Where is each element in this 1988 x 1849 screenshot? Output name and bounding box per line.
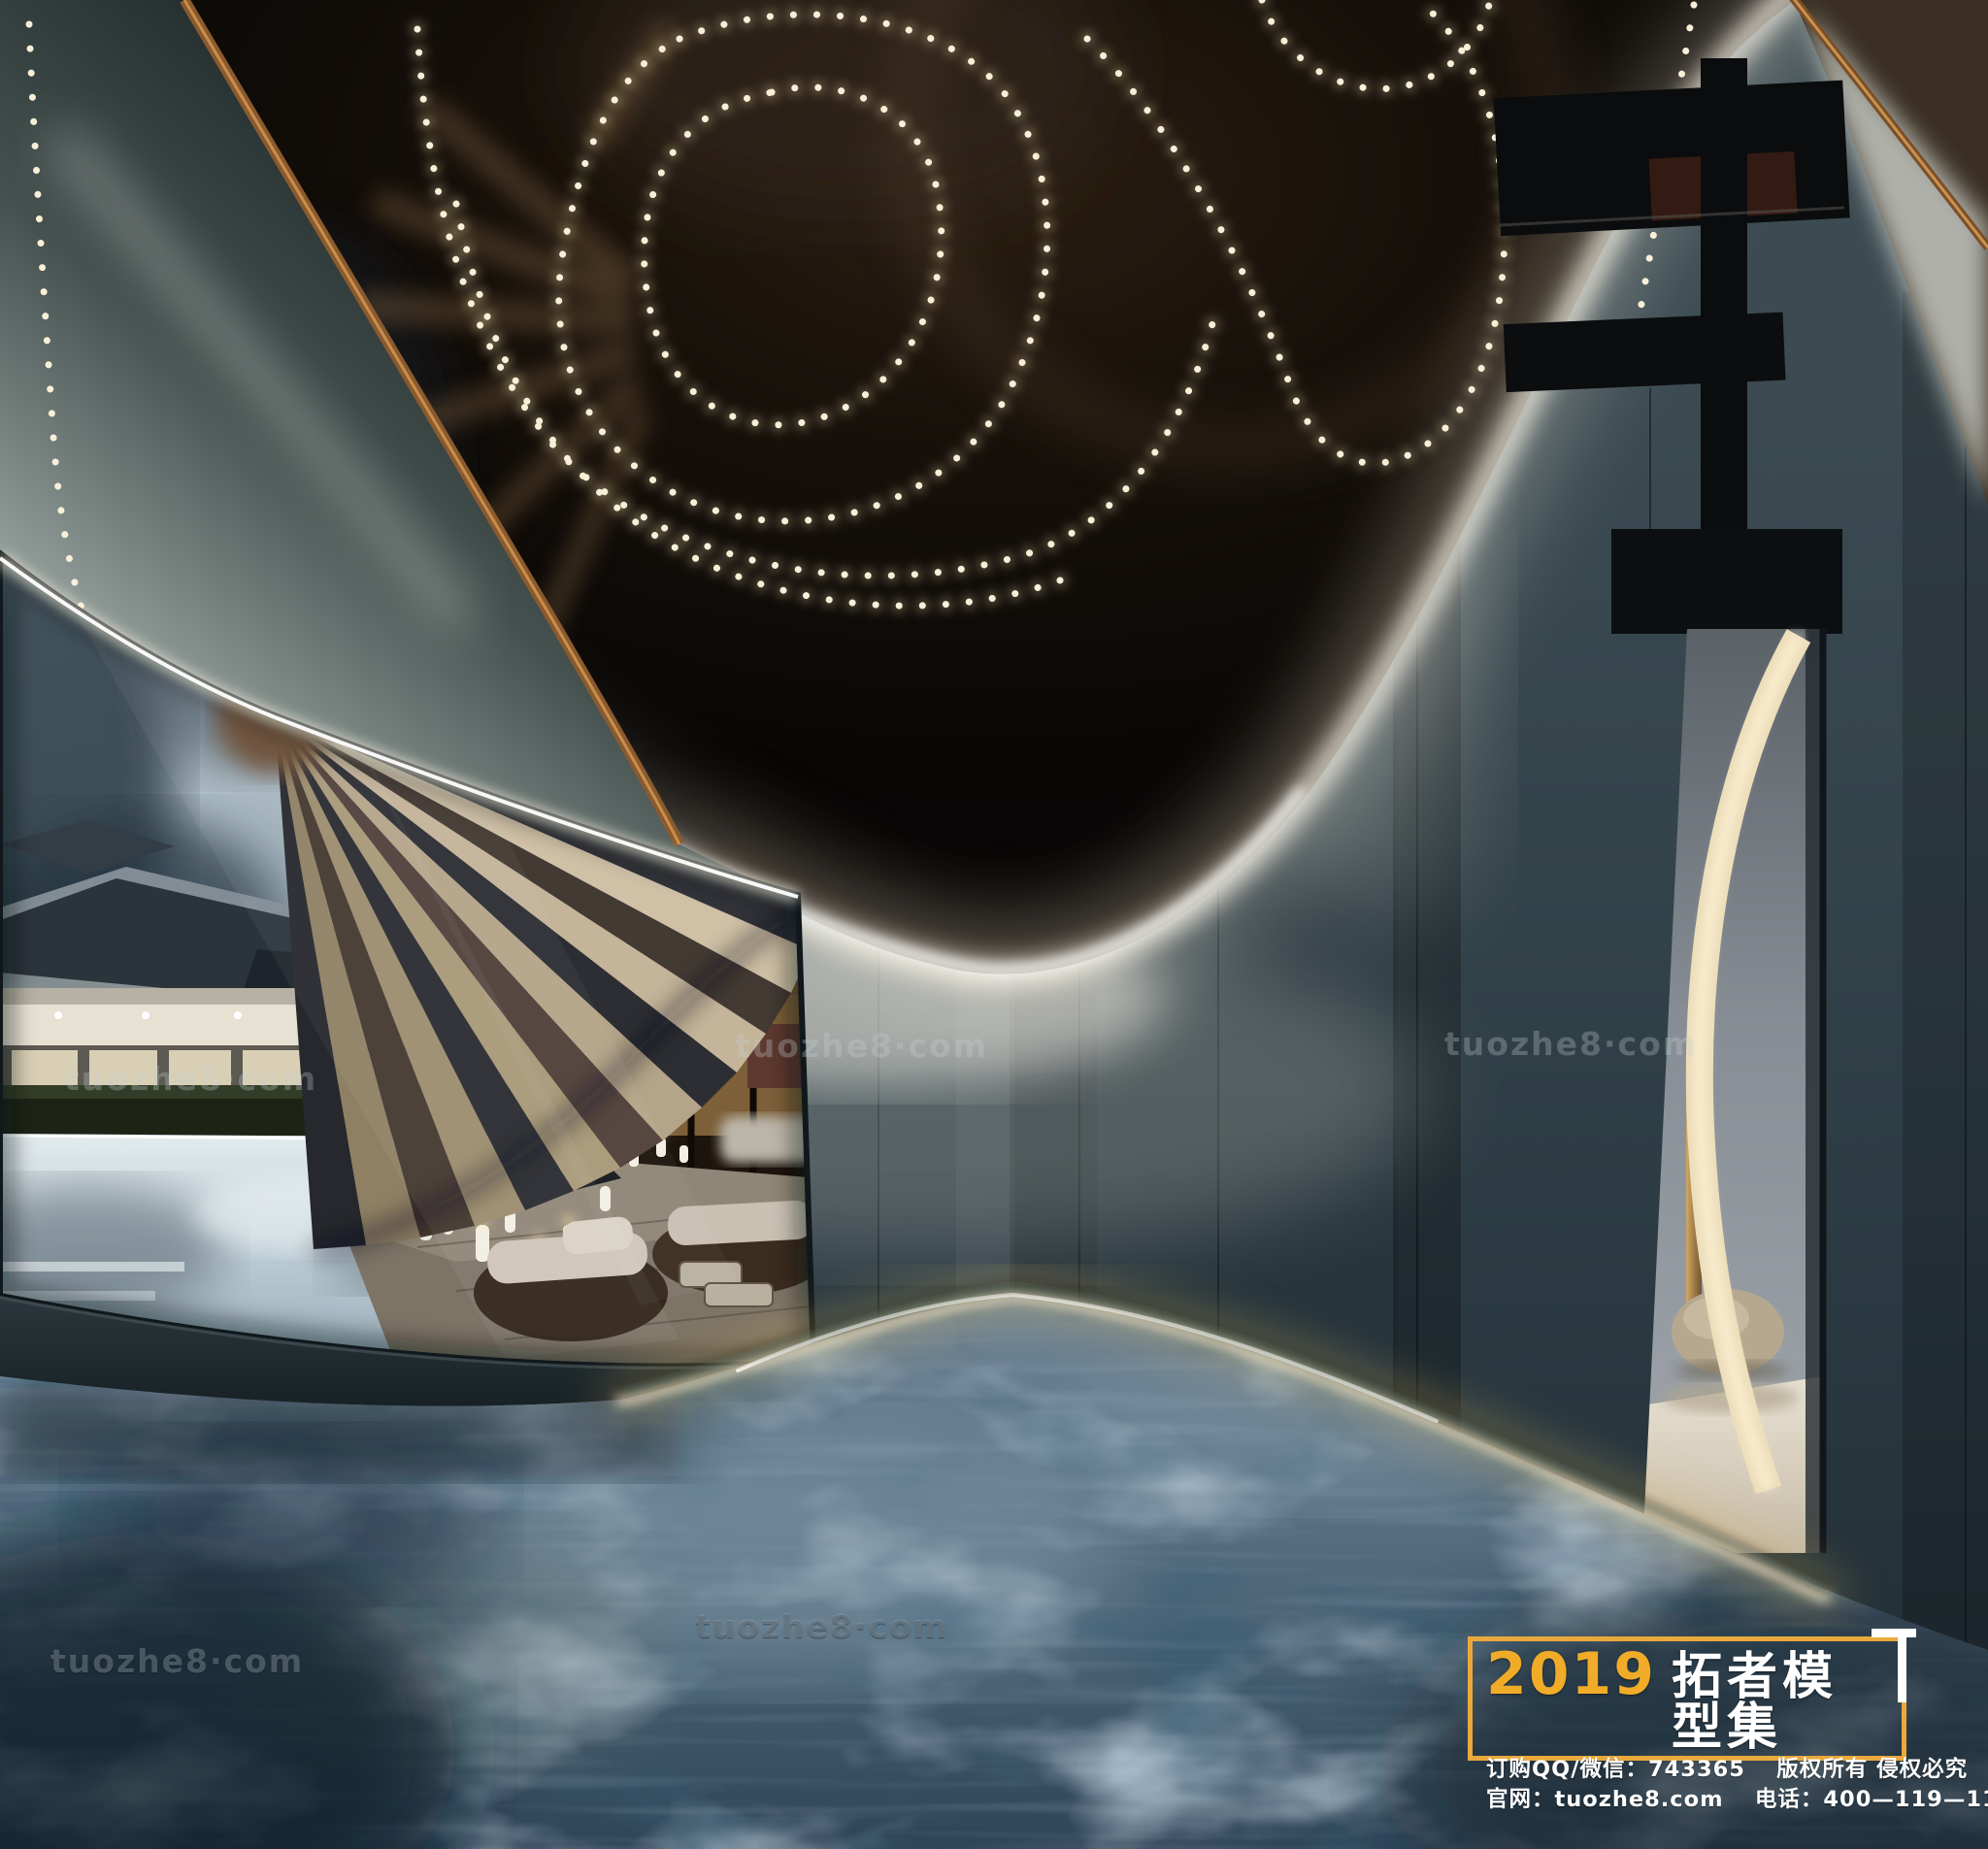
badge-contact-line: 官网：tuozhe8.com 电话：400—119—1118 bbox=[1486, 1786, 1890, 1813]
watermark: tuozhe8·com bbox=[1444, 1025, 1698, 1063]
lobby-render: tuozhe8·com tuozhe8·com tuozhe8·com tuoz… bbox=[0, 0, 1988, 1849]
badge-info-line: 订购QQ/微信：743365 版权所有 侵权必究 bbox=[1486, 1756, 1890, 1783]
badge-title-row: 2019 拓者模型集 bbox=[1486, 1645, 1890, 1753]
badge-year: 2019 bbox=[1486, 1645, 1656, 1703]
watermark: tuozhe8·com bbox=[695, 1607, 948, 1645]
watermark: tuozhe8·com bbox=[50, 1642, 304, 1680]
watermark: tuozhe8·com bbox=[735, 1027, 988, 1065]
badge-title: 拓者模型集 bbox=[1672, 1652, 1890, 1753]
vendor-badge: 2019 拓者模型集 订购QQ/微信：743365 版权所有 侵权必究 官网：t… bbox=[1468, 1636, 1906, 1761]
badge-logo-t-bar bbox=[1872, 1629, 1916, 1637]
scene-art bbox=[0, 0, 1988, 1849]
badge-logo-t-stem bbox=[1898, 1629, 1906, 1702]
watermark: tuozhe8·com bbox=[64, 1060, 317, 1098]
